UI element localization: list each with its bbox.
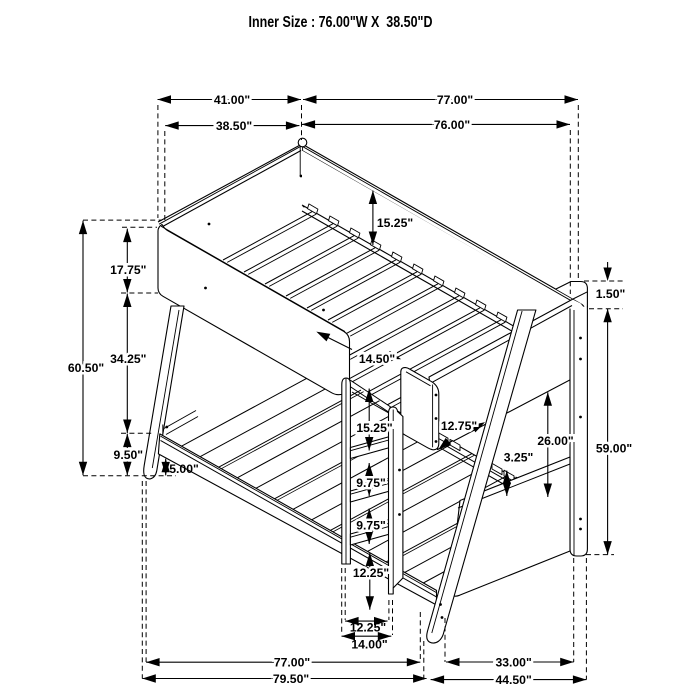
- svg-text:59.00": 59.00": [596, 442, 632, 456]
- svg-text:Inner Size : 76.00"W X 38.50": Inner Size : 76.00"W X 38.50"D: [249, 14, 433, 31]
- svg-text:14.50": 14.50": [359, 352, 395, 366]
- svg-text:9.75": 9.75": [356, 519, 386, 533]
- svg-text:12.25": 12.25": [353, 566, 389, 580]
- svg-text:9.75": 9.75": [356, 476, 386, 490]
- svg-text:41.00": 41.00": [214, 93, 250, 107]
- svg-text:5.00": 5.00": [169, 462, 199, 476]
- svg-text:77.00": 77.00": [274, 656, 310, 670]
- svg-text:12.75": 12.75": [441, 419, 477, 433]
- svg-text:77.00": 77.00": [437, 93, 473, 107]
- svg-text:12.25": 12.25": [350, 621, 386, 635]
- svg-text:34.25": 34.25": [110, 352, 146, 366]
- svg-text:3.25": 3.25": [504, 451, 534, 465]
- svg-text:26.00": 26.00": [537, 434, 573, 448]
- svg-text:33.00": 33.00": [495, 656, 531, 670]
- svg-text:44.50": 44.50": [495, 673, 531, 687]
- svg-text:79.50": 79.50": [273, 672, 309, 686]
- svg-text:15.25": 15.25": [377, 216, 413, 230]
- svg-text:1.50": 1.50": [596, 287, 626, 301]
- svg-text:60.50": 60.50": [68, 361, 104, 375]
- svg-text:17.75": 17.75": [110, 263, 146, 277]
- svg-text:38.50": 38.50": [216, 119, 252, 133]
- svg-text:9.50": 9.50": [114, 448, 144, 462]
- svg-text:15.25": 15.25": [356, 421, 392, 435]
- svg-text:14.00": 14.00": [351, 638, 387, 652]
- svg-text:76.00": 76.00": [434, 118, 470, 132]
